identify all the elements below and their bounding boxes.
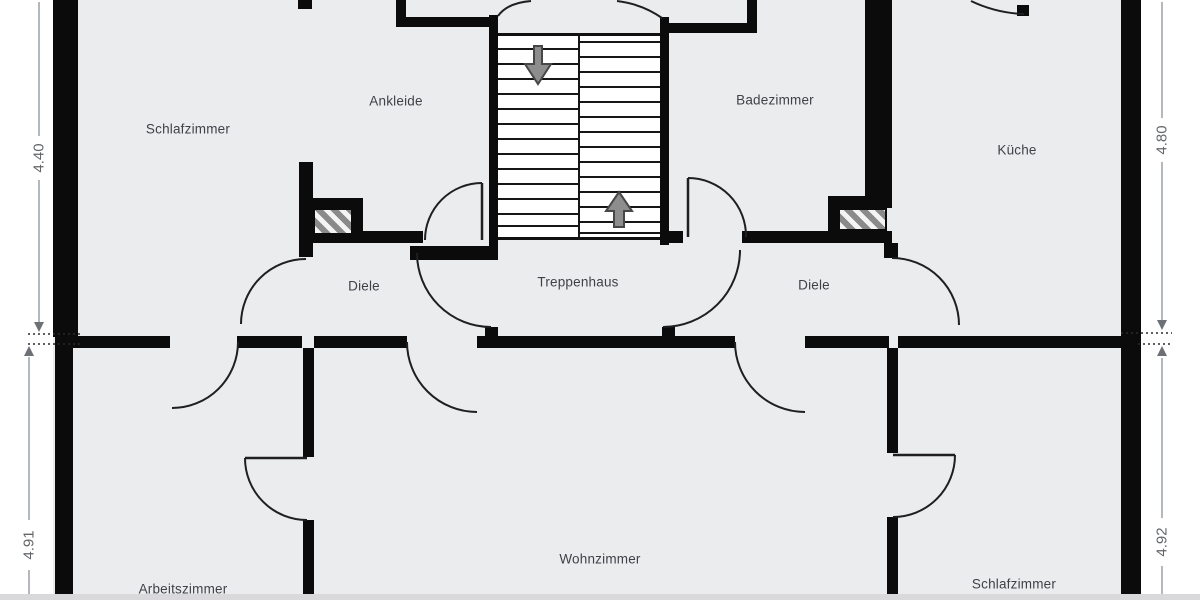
room-label-schlafzimmer-bottom: Schlafzimmer	[972, 577, 1056, 592]
dimension-label-dim-right-upper: 4.80	[1154, 125, 1171, 154]
bottom-cut-edge	[0, 594, 1200, 600]
doors-and-dimensions-overlay	[0, 0, 1200, 600]
kueche-door-arc	[892, 258, 959, 325]
dim-491-arrow-up	[24, 346, 34, 356]
dim-480-arrow-down	[1157, 320, 1167, 330]
ankleide-door-arc	[425, 183, 482, 240]
room-label-wohnzimmer: Wohnzimmer	[559, 552, 640, 567]
room-label-badezimmer: Badezimmer	[736, 93, 814, 108]
schlafzimmer-diele-door-arc	[241, 259, 306, 324]
stair-arrow-up-icon	[606, 192, 632, 227]
dim-440-arrow-down	[34, 322, 44, 332]
arbeitszimmer-door-arc	[172, 342, 238, 408]
dimension-label-dim-right-lower: 4.92	[1154, 527, 1171, 556]
room-label-ankleide: Ankleide	[369, 94, 422, 109]
wohnzimmer-right-door-arc	[735, 342, 805, 412]
dim-492-arrow-up	[1157, 346, 1167, 356]
dimension-label-dim-left-lower: 4.91	[21, 530, 38, 559]
badezimmer-door-arc	[688, 178, 746, 237]
ankleide-top-door-arc	[498, 1, 531, 16]
room-label-diele-left: Diele	[348, 279, 380, 294]
wohnzimmer-left-door-arc	[407, 342, 477, 412]
badezimmer-top-door-arc	[617, 1, 662, 18]
room-label-kueche: Küche	[997, 143, 1036, 158]
treppenhaus-right-door-arc	[663, 250, 740, 327]
floor-plan-canvas: SchlafzimmerAnkleideBadezimmerKücheDiele…	[0, 0, 1200, 600]
room-label-treppenhaus: Treppenhaus	[537, 275, 618, 290]
treppenhaus-left-door-arc	[417, 253, 491, 327]
arbeits-wohn-door-arc	[245, 458, 307, 520]
room-label-diele-right: Diele	[798, 278, 830, 293]
room-label-schlafzimmer-top: Schlafzimmer	[146, 122, 230, 137]
stair-arrow-down-icon	[525, 46, 551, 84]
dimension-label-dim-left-upper: 4.40	[31, 143, 48, 172]
wohn-schlaf-door-arc	[893, 455, 955, 517]
kueche-top-door-arc	[971, 1, 1024, 14]
